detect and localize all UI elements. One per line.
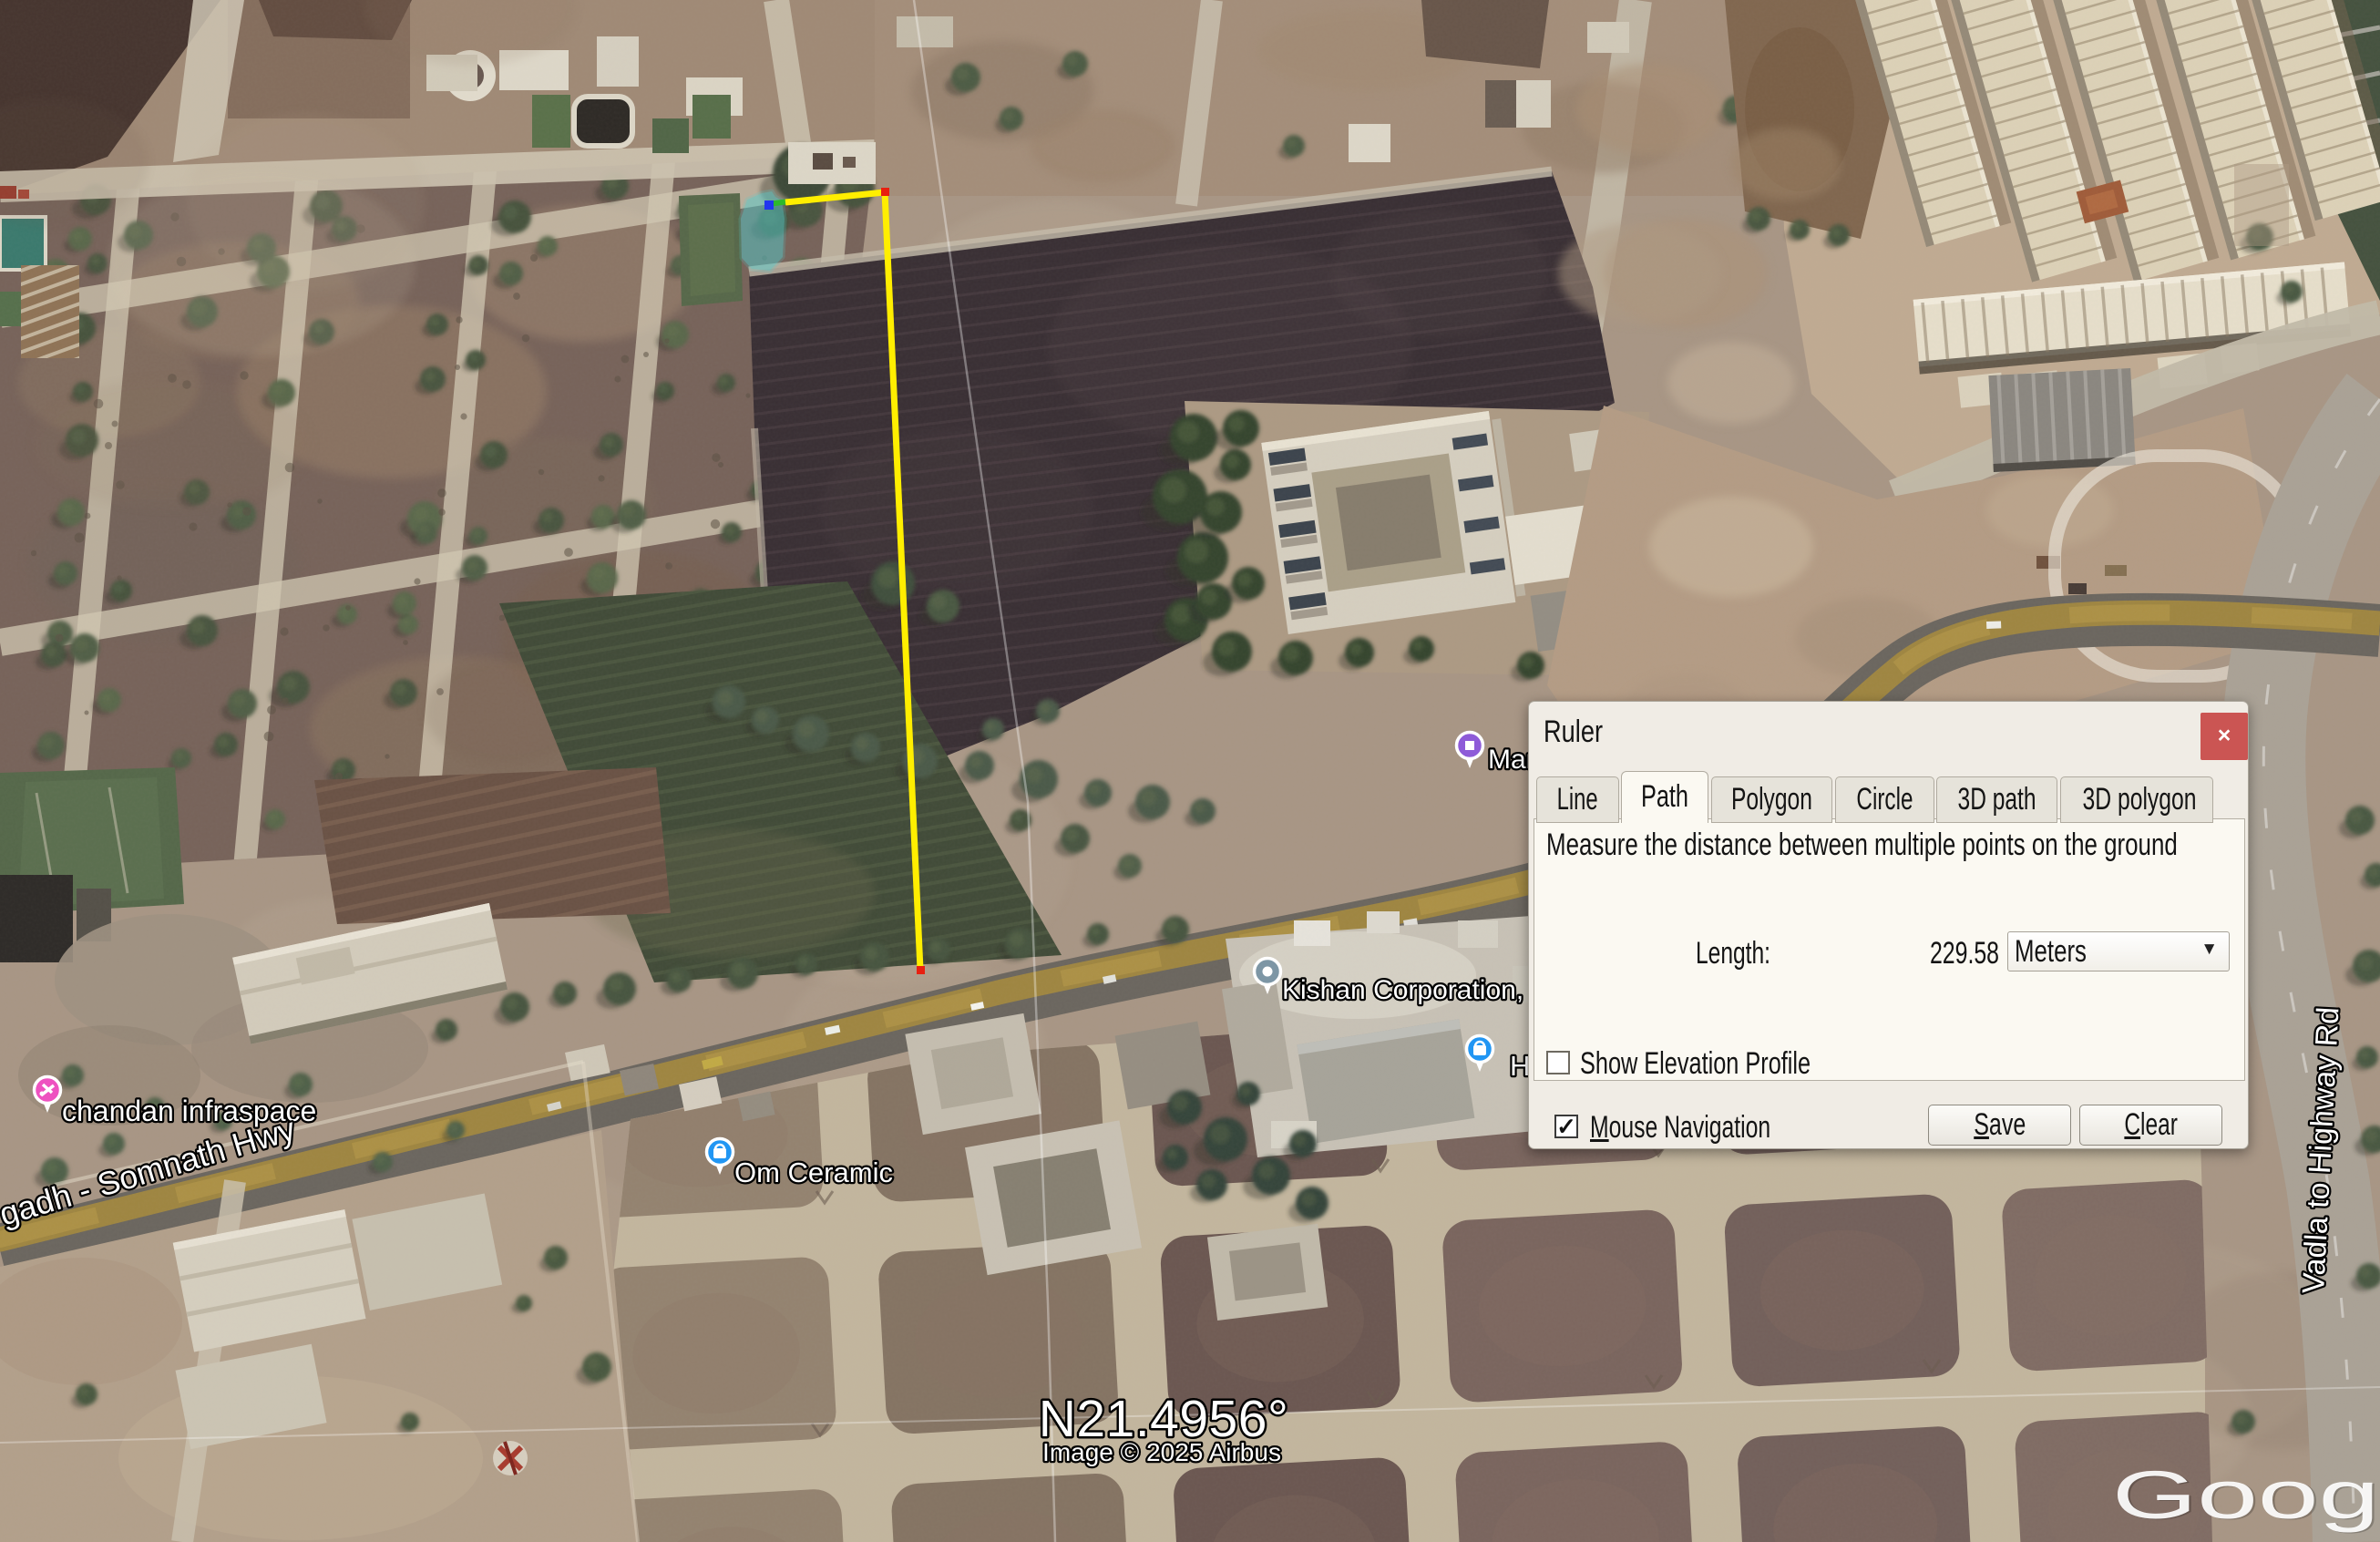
- svg-text:Om Ceramic: Om Ceramic: [734, 1156, 893, 1188]
- svg-text:Image © 2025 Airbus: Image © 2025 Airbus: [1042, 1438, 1281, 1466]
- svg-text:Goog: Goog: [2112, 1458, 2379, 1533]
- svg-text:Kishan Corporation,: Kishan Corporation,: [1282, 975, 1523, 1005]
